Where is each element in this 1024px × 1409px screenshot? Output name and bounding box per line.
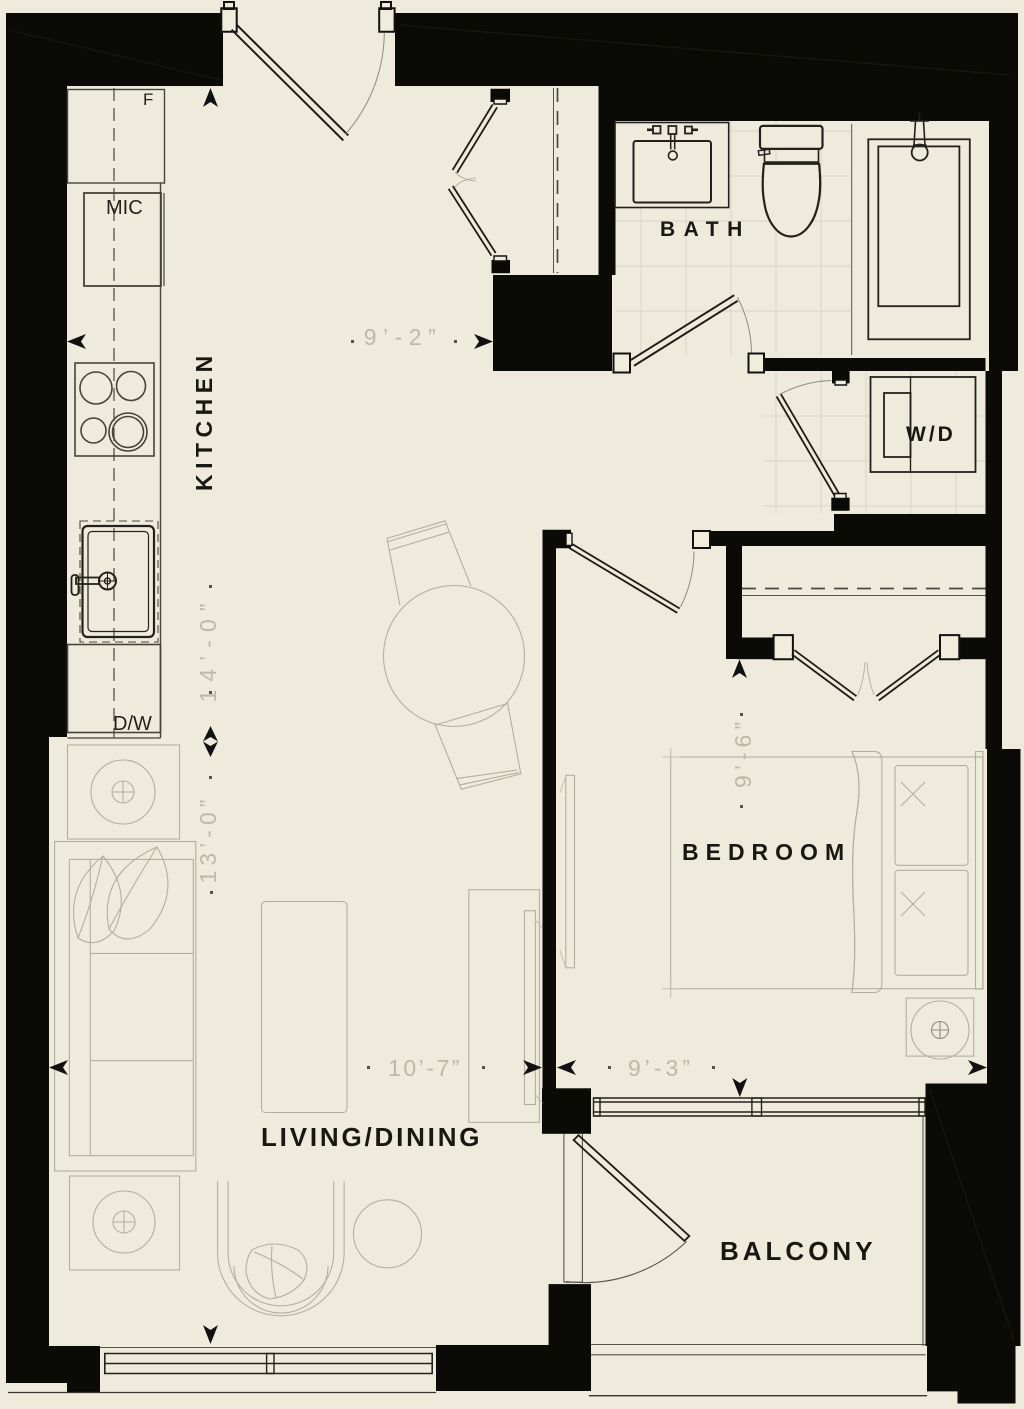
svg-text:BALCONY: BALCONY	[720, 1236, 877, 1266]
svg-text:14’-0”: 14’-0”	[195, 596, 221, 703]
svg-text:BEDROOM: BEDROOM	[682, 839, 851, 865]
svg-text:MIC: MIC	[106, 197, 143, 219]
svg-text:LIVING/DINING: LIVING/DINING	[261, 1122, 482, 1152]
svg-text:KITCHEN: KITCHEN	[191, 350, 217, 491]
svg-text:BATH: BATH	[660, 218, 751, 241]
svg-text:D/W: D/W	[113, 713, 152, 735]
svg-text:F: F	[143, 90, 153, 109]
svg-text:9’-6”: 9’-6”	[730, 717, 756, 788]
svg-text:9’-2”: 9’-2”	[364, 324, 443, 350]
svg-text:13’-0”: 13’-0”	[195, 795, 221, 884]
svg-text:W/D: W/D	[906, 423, 956, 446]
svg-text:10’-7”: 10’-7”	[388, 1055, 462, 1081]
svg-text:9’-3”: 9’-3”	[628, 1055, 694, 1081]
